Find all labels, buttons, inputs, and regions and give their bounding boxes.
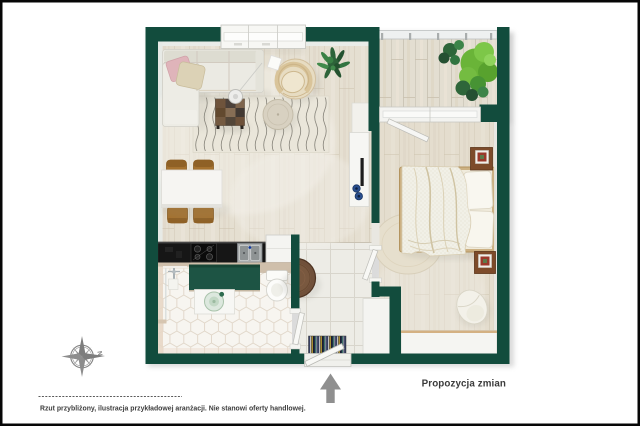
svg-text:Propozycja zmian: Propozycja zmian [422,379,506,390]
svg-text:Rzut przybliżony, ilustracja p: Rzut przybliżony, ilustracja przykładowe… [40,406,306,413]
